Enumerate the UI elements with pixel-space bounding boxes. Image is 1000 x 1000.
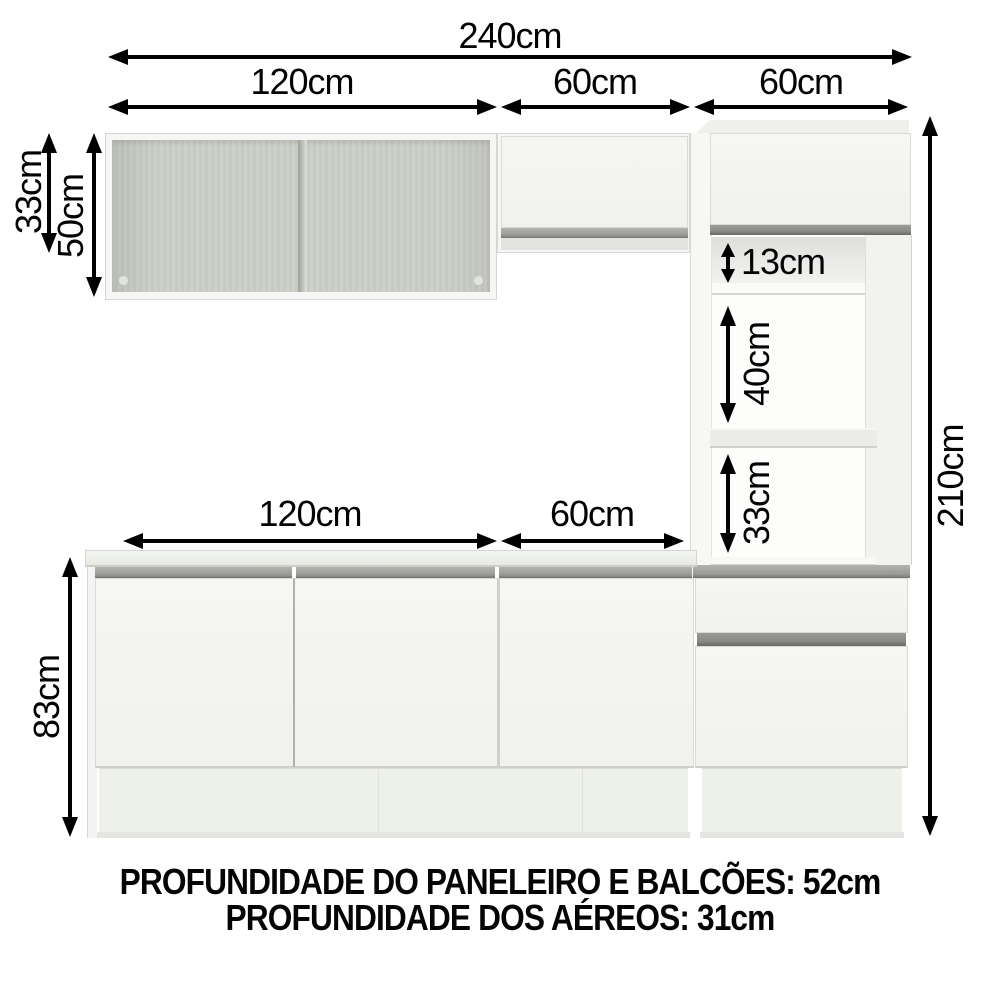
base-handle-strip-2 — [296, 567, 495, 578]
tall-cabinet-ground-shadow — [700, 832, 904, 838]
dim-label-40cm: 40cm — [739, 322, 775, 406]
base-handle-strip-1 — [95, 567, 292, 578]
tall-cabinet-top-surface — [696, 120, 909, 133]
tall-cabinet-base-strip — [693, 565, 910, 578]
wall-cabinet-60 — [497, 133, 690, 253]
tall-cabinet-paneleiro — [690, 120, 913, 838]
depth-note-aereos: PROFUNDIDADE DOS AÉREOS: 31cm — [226, 897, 775, 939]
niche-floor — [710, 557, 877, 565]
countertop — [85, 550, 697, 567]
base-door-divider — [293, 579, 295, 767]
wall-cabinet-interior — [112, 140, 490, 292]
niche-13cm-bottom-shelf — [712, 283, 865, 295]
dim-label-13cm: 13cm — [741, 244, 825, 280]
base-cabinets — [85, 550, 697, 838]
base-handle-strip-3 — [499, 567, 692, 578]
dim-label-60cm-top-mid: 60cm — [553, 64, 637, 100]
wall-cabinet-60-handle-strip — [501, 228, 688, 238]
dim-label-120cm-top: 120cm — [250, 64, 353, 100]
niche-33cm — [712, 448, 865, 557]
tall-cabinet-left-side-panel — [690, 133, 712, 578]
dim-label-60cm-top-right: 60cm — [759, 64, 843, 100]
dim-label-83cm: 83cm — [29, 655, 65, 739]
dim-arrow-60cm-base — [501, 533, 684, 549]
dim-label-50cm-left: 50cm — [53, 174, 89, 258]
niche-middle-shelf — [710, 428, 877, 448]
dim-arrow-120cm-base — [123, 533, 497, 549]
dim-label-60cm-base: 60cm — [550, 496, 634, 532]
dim-label-120cm-base: 120cm — [258, 496, 361, 532]
wall-cabinet-60-bottom-band — [501, 238, 688, 250]
hinge-hole — [474, 276, 483, 285]
hinge-hole — [119, 276, 128, 285]
base-unit-gap — [497, 579, 500, 767]
niche-right-wall — [865, 235, 912, 565]
niche-40cm — [712, 295, 865, 428]
cabinet-center-divider — [298, 140, 307, 292]
base-ground-shadow — [97, 832, 690, 838]
kitchen-dimensions-diagram: 240cm 120cm 60cm 60cm 33cm 50cm 13cm 40c… — [0, 0, 1000, 1000]
tall-cabinet-drawer-handle-strip — [697, 633, 906, 646]
tall-cabinet-top-door — [710, 133, 911, 225]
tall-cabinet-base-door — [695, 646, 908, 768]
wall-cabinet-120-open — [105, 133, 497, 300]
dim-label-33cm-left: 33cm — [11, 150, 47, 234]
tall-cabinet-top-door-handle-strip — [710, 225, 911, 235]
tall-cabinet-plinth — [702, 768, 902, 832]
tall-cabinet-drawer — [695, 578, 908, 633]
dim-label-210cm: 210cm — [933, 424, 969, 527]
base-plinth — [99, 768, 688, 832]
dim-label-240cm: 240cm — [458, 18, 561, 54]
base-doors — [95, 578, 694, 768]
dim-label-33cm-niche: 33cm — [739, 461, 775, 545]
wall-cabinet-60-door — [501, 136, 688, 228]
plinth-seam — [582, 769, 583, 833]
plinth-seam — [378, 769, 379, 833]
